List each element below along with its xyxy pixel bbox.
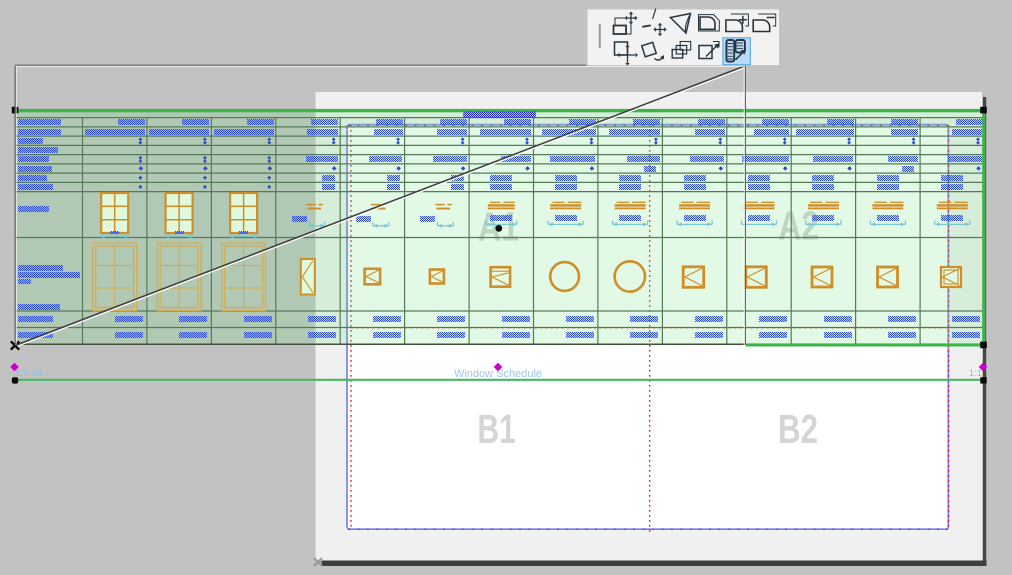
svg-text:1:1: 1:1 <box>969 368 982 379</box>
svg-text:ES-04: ES-04 <box>16 368 42 379</box>
svg-text:B2: B2 <box>778 406 818 452</box>
svg-text:B1: B1 <box>477 406 516 452</box>
